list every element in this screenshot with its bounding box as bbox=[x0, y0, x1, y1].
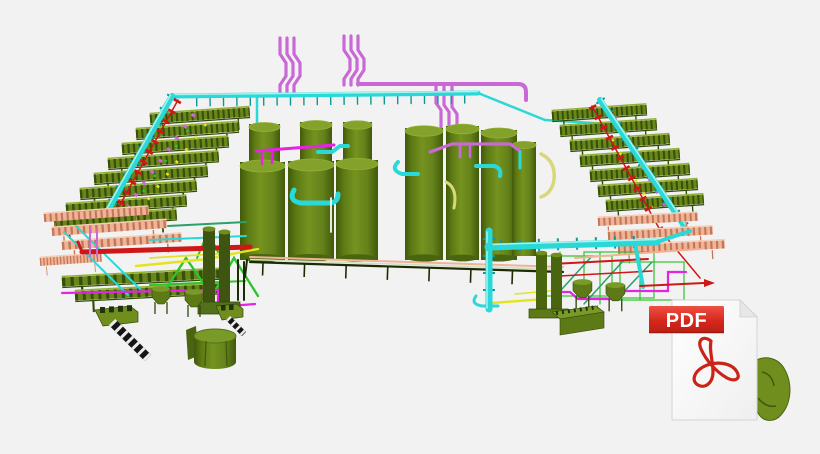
plant-3d-model: PDF bbox=[0, 0, 820, 454]
small-tank bbox=[186, 326, 236, 369]
twin-columns bbox=[198, 226, 240, 314]
tank bbox=[336, 158, 378, 261]
walkway-left bbox=[95, 305, 148, 358]
tank bbox=[405, 126, 443, 262]
green-blob bbox=[752, 358, 790, 421]
tank bbox=[512, 141, 536, 256]
pdf-file-icon[interactable]: PDF bbox=[649, 300, 757, 420]
tank bbox=[288, 159, 334, 262]
right-salmon-racks bbox=[598, 212, 726, 264]
pdf-banner-label: PDF bbox=[666, 310, 708, 332]
screenshot-canvas: PDF bbox=[0, 0, 820, 454]
bottom-rack-pipe bbox=[245, 257, 563, 279]
twin-columns-right bbox=[529, 251, 568, 318]
left-diagonal-pipes bbox=[106, 95, 179, 212]
ground-equipment bbox=[95, 304, 604, 369]
red-arrow-pipe bbox=[640, 279, 715, 287]
pdf-page-fold bbox=[740, 300, 757, 317]
